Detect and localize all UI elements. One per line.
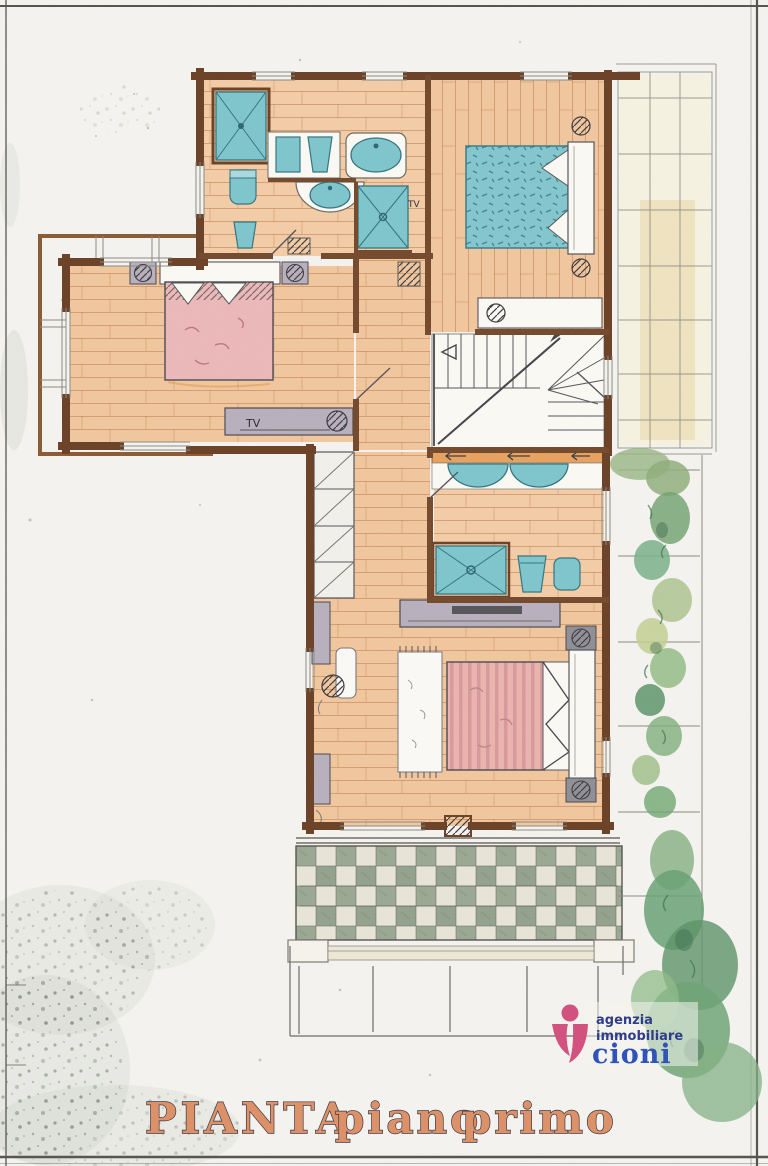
scanned-floor-plan-page: TV	[0, 0, 768, 1166]
floor-plan-drawing: TV	[0, 0, 768, 1166]
paper-grain	[0, 0, 768, 1166]
